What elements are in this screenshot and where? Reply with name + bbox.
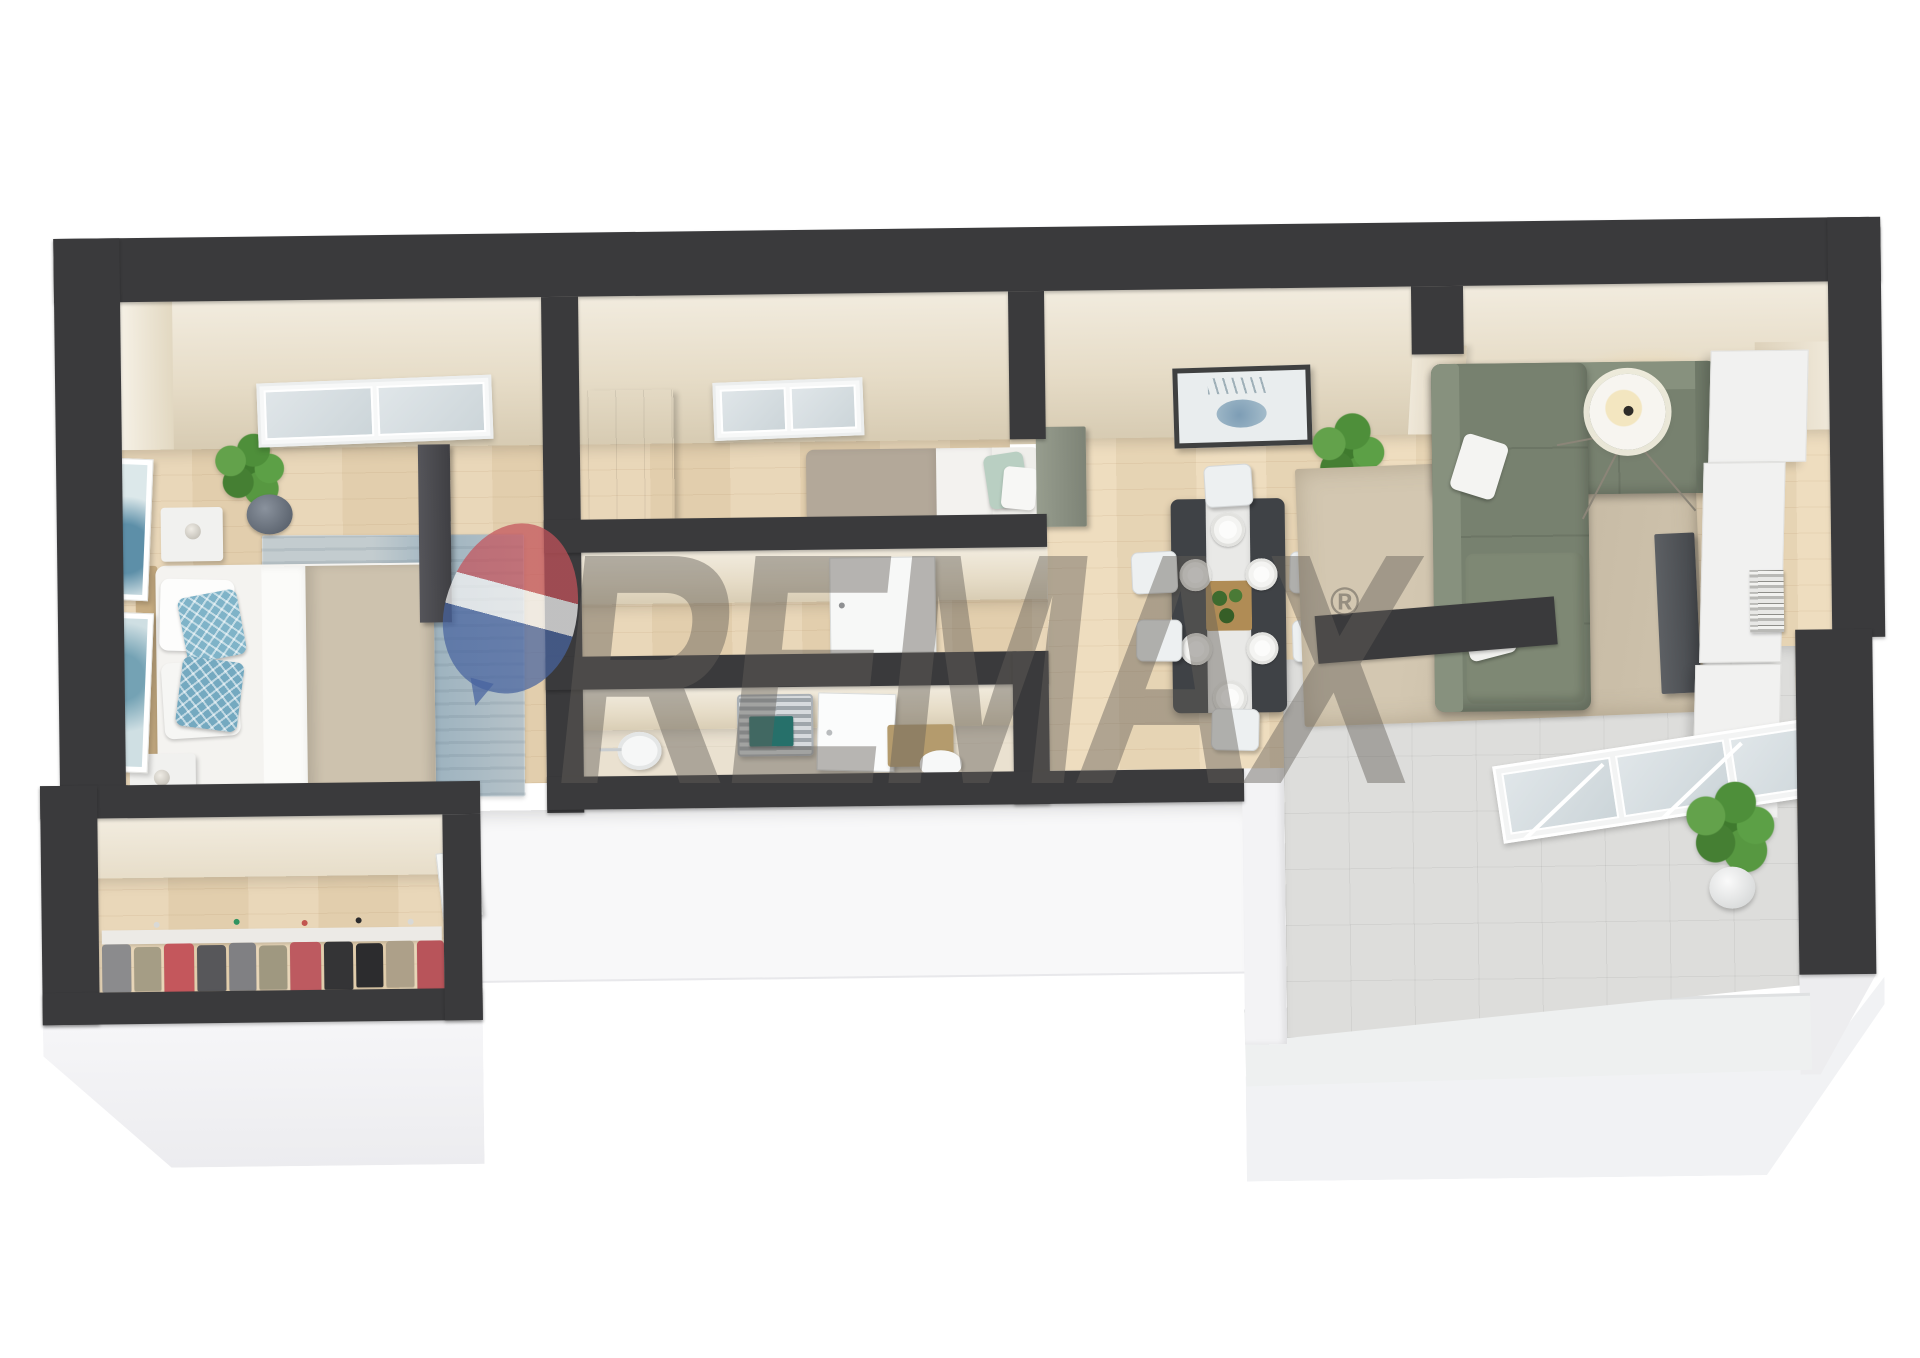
media-cabinet-upper <box>1708 350 1809 463</box>
media-cabinet-middle <box>1699 462 1786 663</box>
lamp-bulb <box>1623 406 1633 416</box>
book-stack <box>1749 570 1784 632</box>
wall-left <box>53 238 126 789</box>
wall-bedroom2-east-stub <box>1008 291 1046 439</box>
hanging-clothes <box>259 945 288 989</box>
window-pane <box>376 382 486 436</box>
hanging-clothes <box>290 942 321 992</box>
hanging-clothes <box>163 943 194 993</box>
hanging-clothes <box>102 944 131 992</box>
hanging-clothes <box>356 943 383 987</box>
watermark-brand-text: REMAX <box>543 540 1423 797</box>
walk-in-closet <box>0 0 1912 12</box>
bedroom2-window <box>712 377 864 441</box>
deer-body <box>1216 399 1267 428</box>
floor-plan-screenshot: REMAX ® <box>0 0 1920 1358</box>
hanger-knob <box>356 917 362 923</box>
living-dining <box>0 0 1912 12</box>
window-pane <box>720 387 788 434</box>
hanging-clothes <box>134 947 161 991</box>
table-lamp-bottom <box>154 770 170 786</box>
bedroom-window <box>256 375 493 448</box>
wall-bedroom-closet <box>40 781 480 819</box>
window-pane <box>790 384 858 431</box>
hanging-clothes <box>385 941 414 987</box>
wall-closet-east <box>442 814 483 1020</box>
wall-right-outer <box>1827 217 1885 638</box>
deer-wall-art <box>1172 365 1312 449</box>
sofa-back-cushion <box>1431 364 1463 712</box>
walls <box>0 0 1912 12</box>
hanging-clothes <box>324 941 353 989</box>
bed-pillow-blue-1 <box>176 588 247 664</box>
building-base <box>0 0 1912 12</box>
wall-closet-bottom <box>42 988 482 1025</box>
master-bedroom <box>0 0 1912 12</box>
podium-left-face <box>43 1018 485 1171</box>
bed-pillow-blue-2 <box>175 656 245 733</box>
bedroom-2 <box>0 0 1912 12</box>
wall-closet-left <box>40 786 100 1026</box>
deer-antlers <box>1208 377 1268 395</box>
hanging-clothes <box>229 943 256 991</box>
balcony <box>0 0 1912 12</box>
wall-balcony-right <box>1795 629 1876 975</box>
bathroom <box>0 0 1912 12</box>
watermark-registered-mark: ® <box>1330 580 1359 625</box>
hanger-knob <box>154 922 160 928</box>
hanging-clothes <box>197 945 226 991</box>
hanger-knob <box>408 919 414 925</box>
wall-partition-stub <box>1411 286 1464 355</box>
window-pane <box>264 386 374 440</box>
table-lamp-top <box>185 523 201 539</box>
hanging-clothes <box>417 940 444 990</box>
bed-beige-blanket <box>305 564 436 804</box>
hanger-knob <box>234 919 240 925</box>
hallway <box>0 0 1912 12</box>
hanger-knob <box>302 920 308 926</box>
